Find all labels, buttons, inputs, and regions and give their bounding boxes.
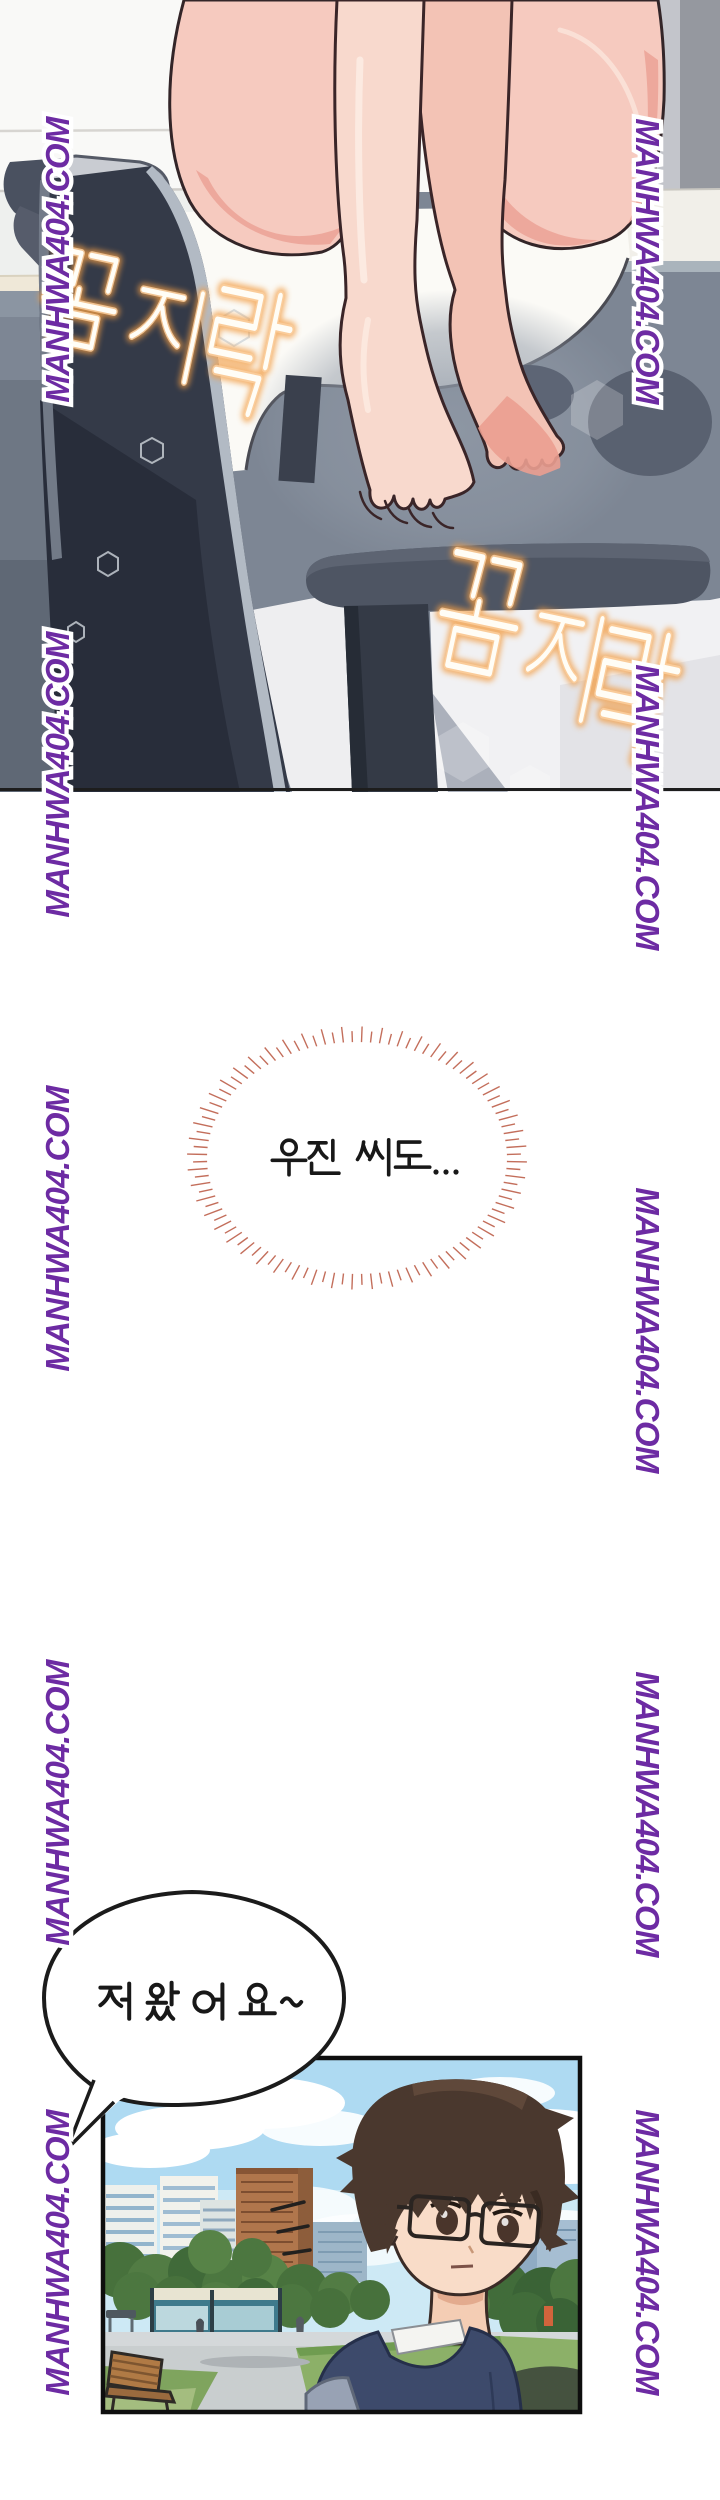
svg-text:MANHWA404.COM: MANHWA404.COM [39,1084,76,1372]
svg-text:MANHWA404.COM: MANHWA404.COM [629,2109,666,2397]
svg-text:MANHWA404.COM: MANHWA404.COM [39,115,76,403]
svg-text:MANHWA404.COM: MANHWA404.COM [629,664,666,952]
svg-text:MANHWA404.COM: MANHWA404.COM [39,630,76,918]
svg-text:MANHWA404.COM: MANHWA404.COM [629,1671,666,1959]
svg-text:MANHWA404.COM: MANHWA404.COM [39,2108,76,2396]
svg-text:MANHWA404.COM: MANHWA404.COM [39,1658,76,1946]
svg-text:MANHWA404.COM: MANHWA404.COM [629,1187,666,1475]
svg-text:MANHWA404.COM: MANHWA404.COM [629,118,666,406]
